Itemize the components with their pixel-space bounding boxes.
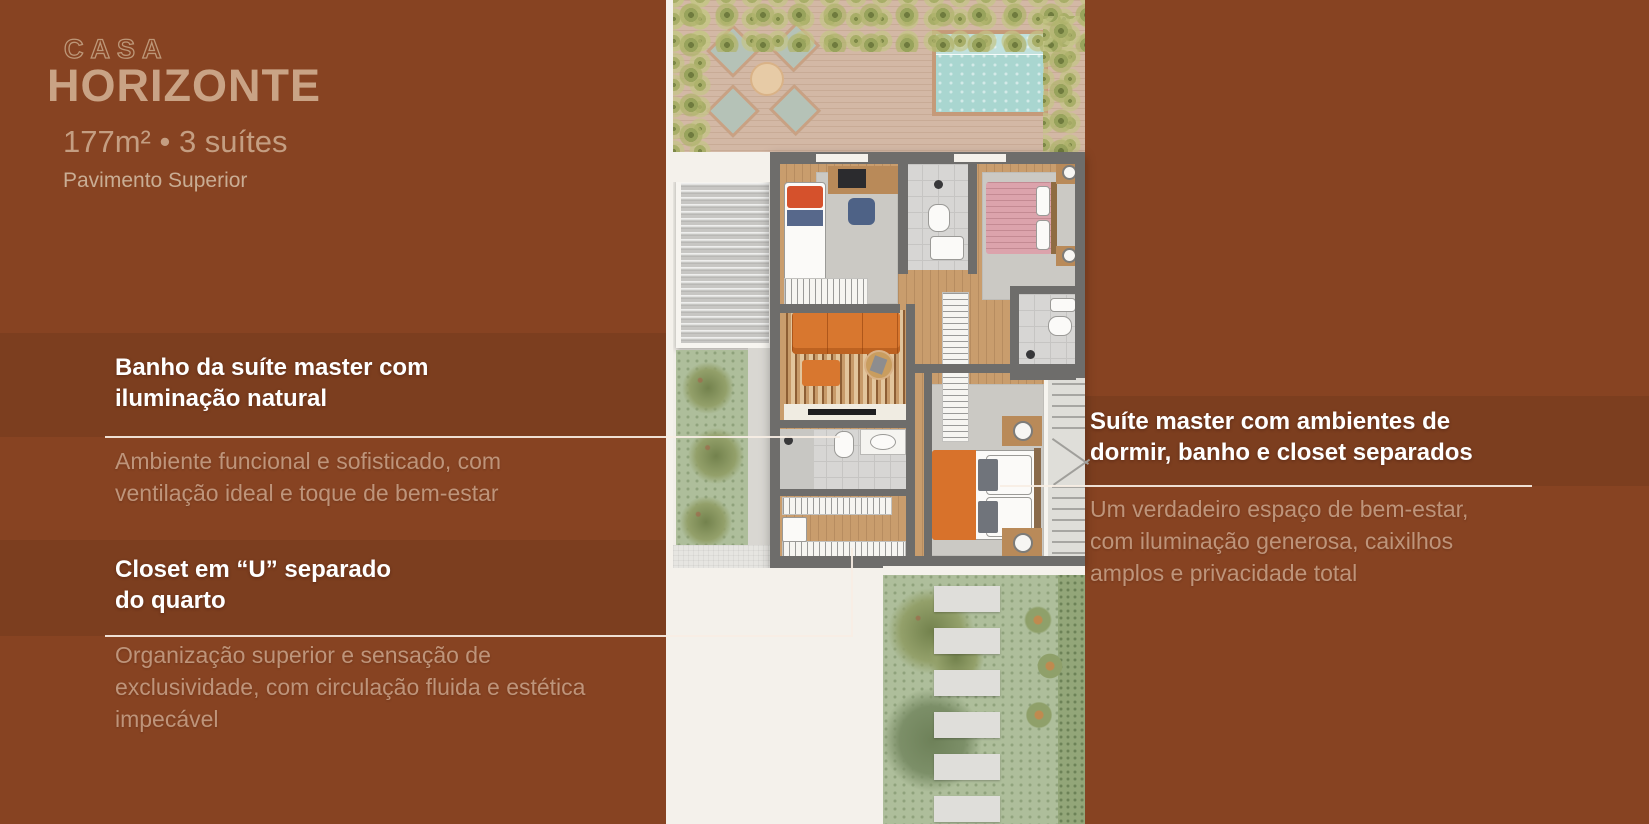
side-walkway (673, 152, 770, 182)
plan-left-border (666, 0, 673, 824)
palm-hedge-top (673, 0, 1085, 52)
suite2-pillow (787, 186, 823, 208)
callout-bath-master: Banho da suíte master com iluminação nat… (115, 352, 501, 509)
bush (680, 496, 732, 548)
sink (870, 434, 896, 450)
callout-closet-heading: Closet em “U” separado do quarto (115, 554, 585, 616)
master-lamp (1013, 421, 1033, 441)
marketing-slide: CASA HORIZONTE 177m² • 3 suítes Paviment… (0, 0, 1649, 824)
wall (770, 489, 910, 496)
staircase (1044, 372, 1085, 556)
stair-steps-lower (1052, 486, 1085, 556)
stepping-stone (934, 712, 1000, 738)
wall (968, 152, 977, 274)
suite2-wardrobe (784, 278, 868, 306)
sink (1050, 298, 1076, 312)
wall (1010, 286, 1019, 380)
sliding-door (954, 154, 1006, 162)
leader-line-closet-vertical (851, 548, 853, 637)
callout-bath-master-heading: Banho da suíte master com iluminação nat… (115, 352, 501, 414)
master-cushion (978, 459, 998, 491)
wall (770, 152, 780, 568)
palm-hedge-right (1043, 16, 1085, 160)
stair-diagonal (1053, 459, 1090, 486)
stepping-stone (934, 586, 1000, 612)
tv (808, 409, 876, 415)
callout-suite-master: Suíte master com ambientes de dormir, ba… (1090, 406, 1473, 589)
suite2-chair (848, 198, 875, 225)
callout-suite-master-body: Um verdadeiro espaço de bem-estar, com i… (1090, 493, 1473, 589)
sofa (792, 312, 900, 354)
callout-bath-master-body: Ambiente funcional e sofisticado, com ve… (115, 445, 501, 509)
wall (898, 152, 908, 274)
wall (770, 420, 910, 428)
master-lamp (1013, 533, 1033, 553)
suite3-pillow (1036, 186, 1050, 216)
floor-label: Pavimento Superior (63, 169, 247, 193)
stepping-stone (934, 628, 1000, 654)
master-blanket (932, 450, 976, 540)
suite2-monitor (838, 169, 866, 188)
floor-plan (666, 0, 1085, 824)
shower-head (934, 180, 943, 189)
suite2-blanket (787, 210, 823, 226)
ottoman (802, 360, 840, 386)
master-cushion (978, 501, 998, 533)
sink (930, 236, 964, 260)
stair-steps-upper (1052, 372, 1085, 436)
stepping-stone (934, 670, 1000, 696)
suite3-pillow (1036, 220, 1050, 250)
wall (770, 304, 900, 313)
stepping-stone (934, 796, 1000, 822)
callout-closet-body: Organização superior e sensação de exclu… (115, 639, 585, 735)
toilet (1048, 316, 1072, 336)
entry-roof (676, 178, 774, 348)
suite3-headboard (1051, 182, 1057, 254)
stair-diagonal (1052, 438, 1089, 465)
callout-suite-master-heading: Suíte master com ambientes de dormir, ba… (1090, 406, 1473, 468)
brand-specs: 177m² • 3 suítes (63, 124, 288, 160)
wall (1010, 372, 1076, 380)
toilet (928, 204, 950, 232)
round-table (750, 62, 784, 96)
bush (682, 362, 734, 414)
closet-shelf-top (782, 497, 892, 515)
shower-head (1026, 350, 1035, 359)
ornamental-plant (1032, 648, 1068, 684)
garden-walkway (883, 566, 1085, 575)
wall (906, 304, 915, 556)
side-path (748, 348, 770, 568)
callout-closet: Closet em “U” separado do quarto Organiz… (115, 554, 585, 735)
stepping-stone (934, 754, 1000, 780)
sliding-door (816, 154, 868, 162)
closet-cabinet (782, 517, 807, 542)
hedge-strip (1058, 566, 1085, 824)
wall (1075, 152, 1085, 378)
wall (1010, 286, 1076, 294)
brand-title: HORIZONTE (47, 60, 321, 112)
ornamental-plant (1018, 600, 1058, 640)
wall (924, 373, 932, 556)
ornamental-plant (1020, 696, 1058, 734)
